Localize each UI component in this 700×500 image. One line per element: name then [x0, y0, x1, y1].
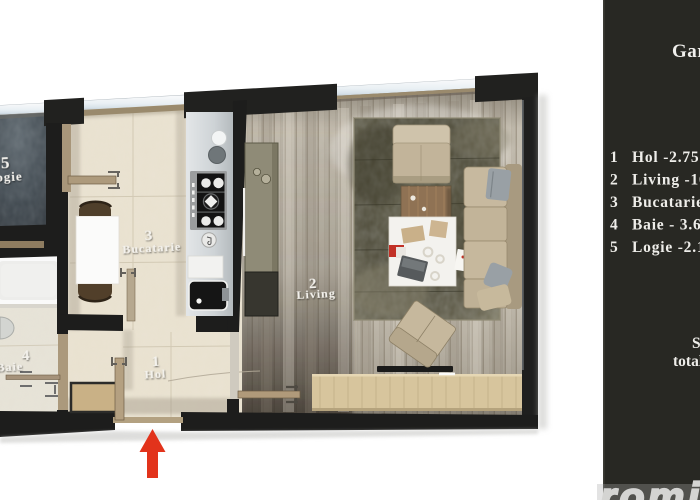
svg-text:1: 1	[610, 149, 619, 166]
svg-text:Bucatarie -5: Bucatarie -5	[632, 194, 700, 211]
svg-text:Baie: Baie	[0, 359, 23, 374]
svg-text:3: 3	[610, 194, 619, 211]
svg-text:5: 5	[610, 239, 619, 256]
svg-text:Living -16.7: Living -16.7	[632, 172, 700, 189]
svg-text:Living: Living	[296, 286, 336, 302]
svg-text:Hol: Hol	[144, 366, 166, 381]
svg-text:Supr: Supr	[692, 335, 700, 352]
svg-text:4: 4	[610, 217, 619, 234]
svg-text:Hol -2.75 m: Hol -2.75 m	[632, 149, 700, 166]
svg-text:Logie: Logie	[0, 168, 23, 185]
svg-text:Garsonier: Garsonier	[672, 41, 700, 62]
svg-text:romimo: romimo	[600, 474, 700, 500]
svg-text:2: 2	[610, 172, 619, 189]
svg-text:totala: totala	[673, 353, 700, 370]
svg-text:Logie -2.15: Logie -2.15	[632, 239, 700, 256]
svg-text:Baie - 3.65: Baie - 3.65	[632, 217, 700, 234]
